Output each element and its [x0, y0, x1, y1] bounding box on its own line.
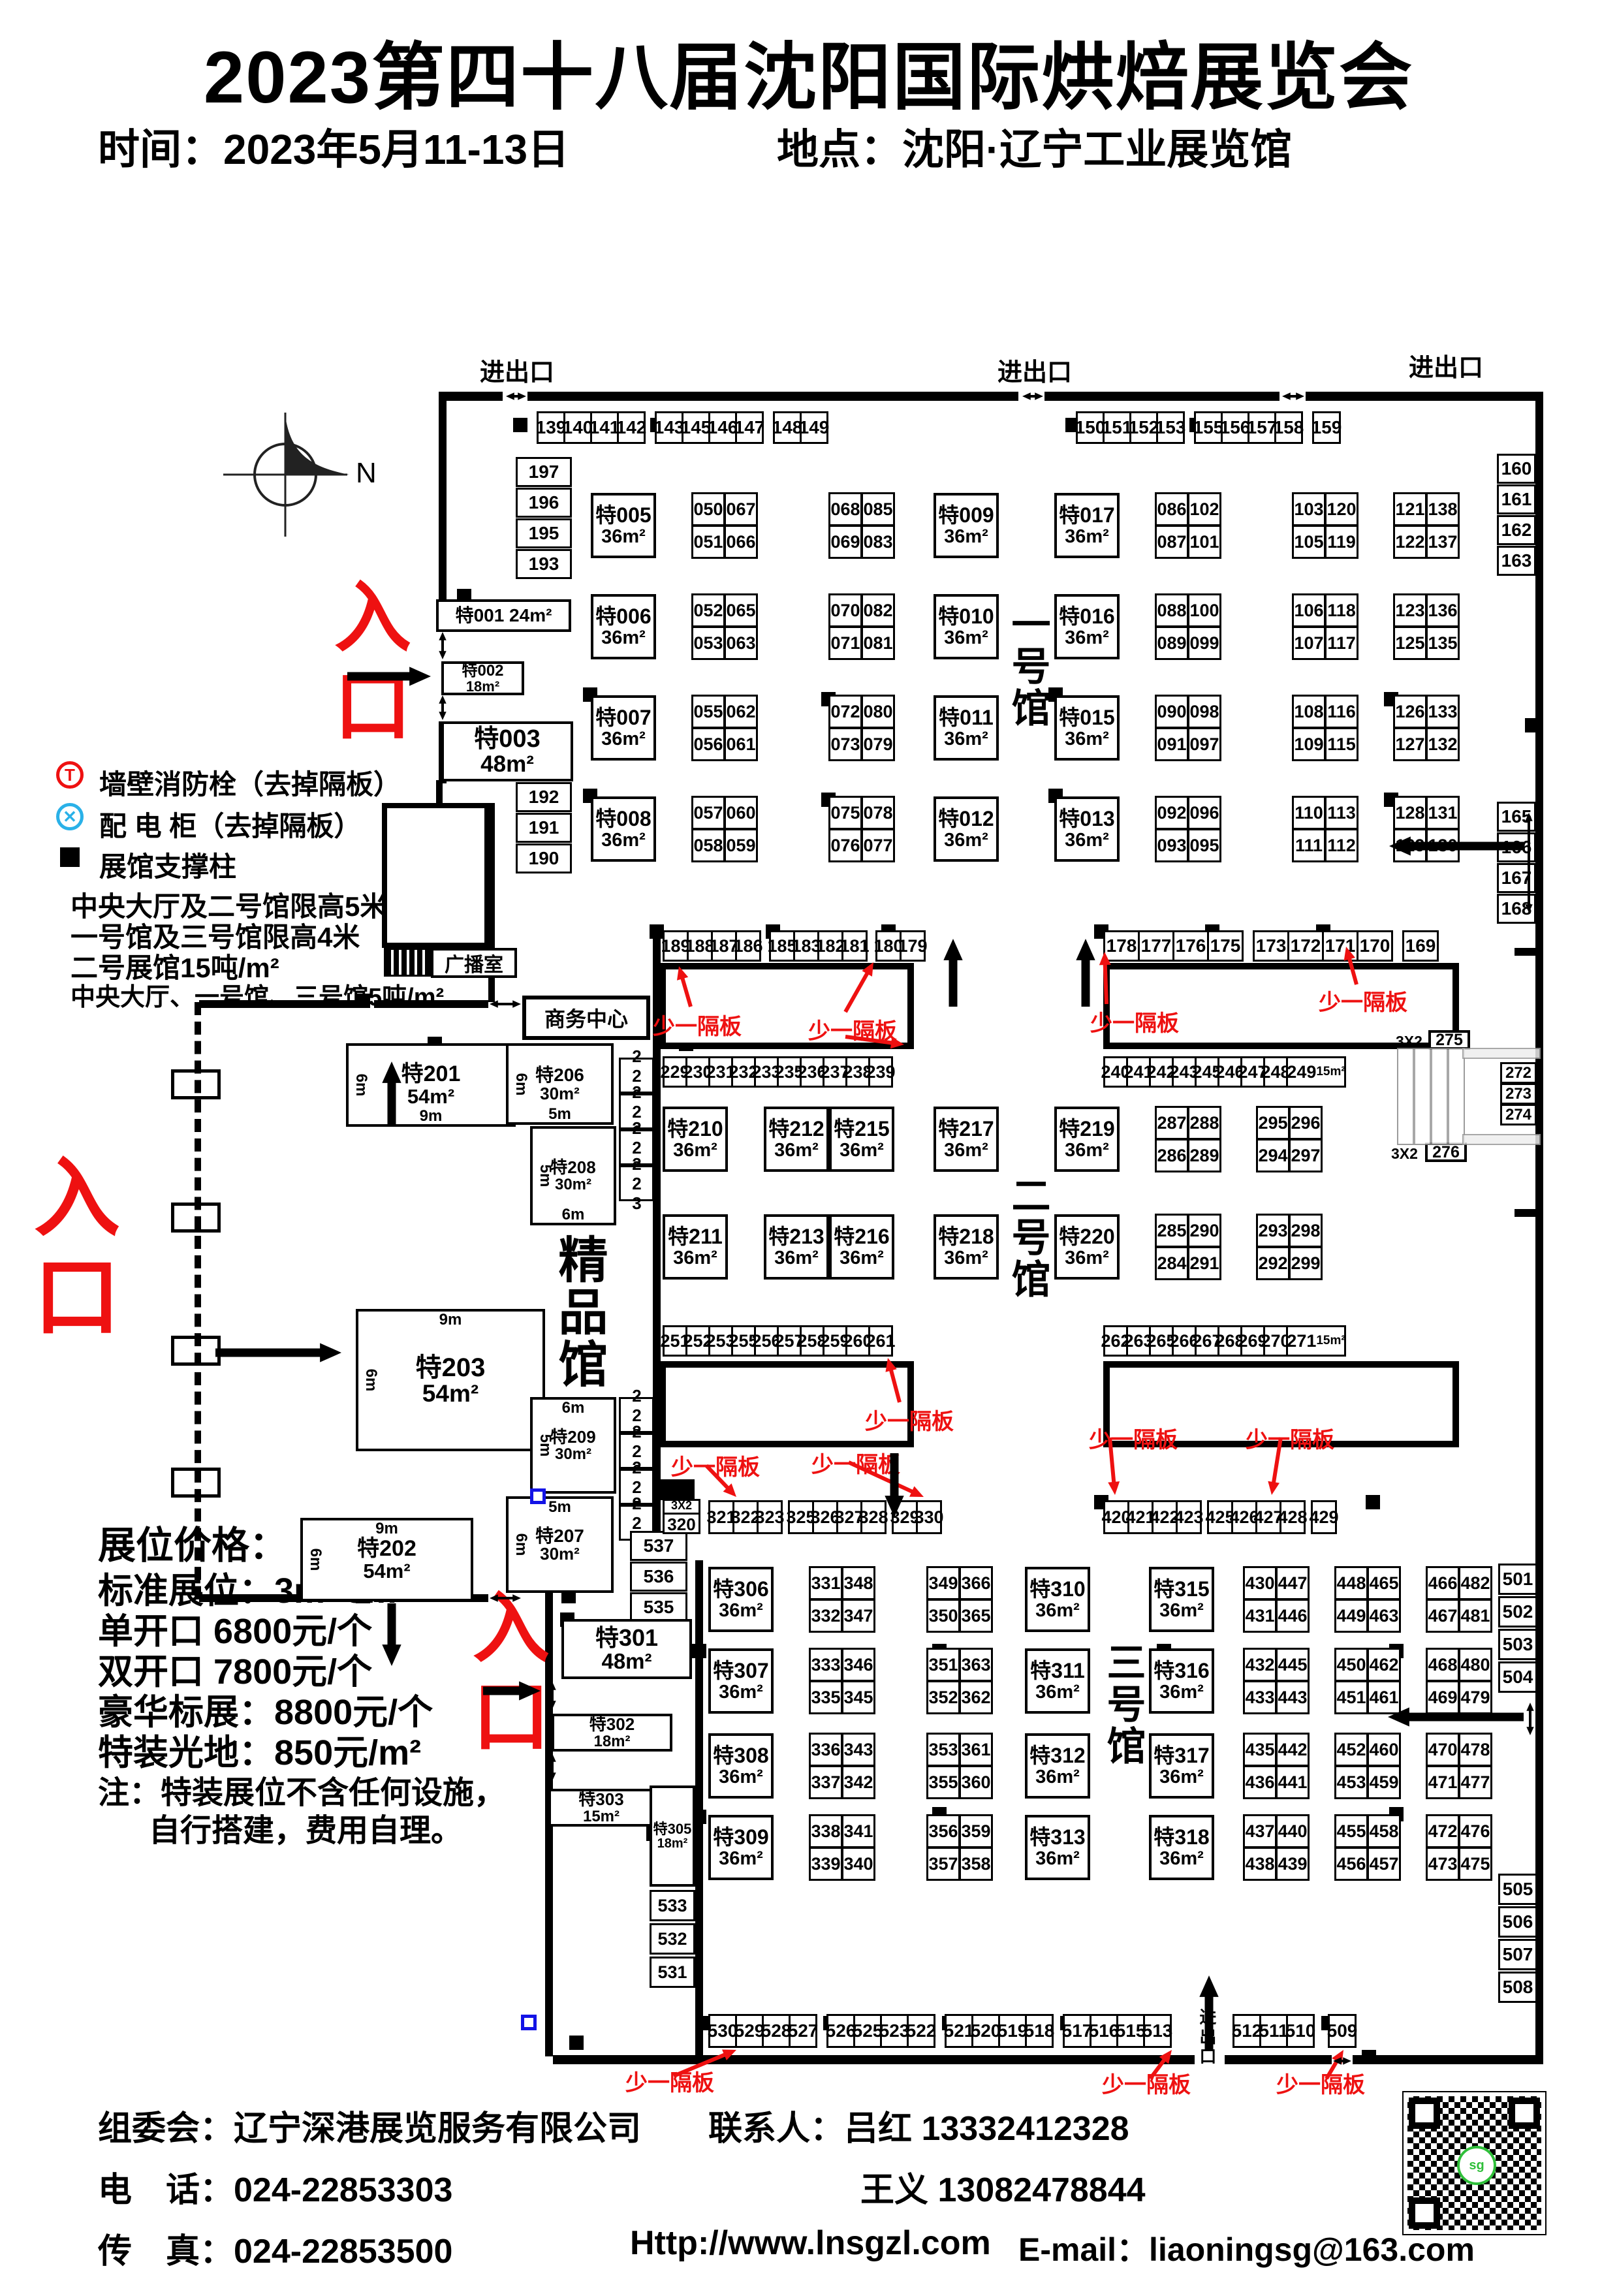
flow-arrow	[1076, 939, 1095, 960]
booth-261: 261	[868, 1325, 893, 1357]
wall	[199, 1000, 356, 1008]
booth-518: 518	[1025, 2014, 1054, 2048]
booth-area: 36m²	[1065, 628, 1109, 648]
booth-特207: 特20730m²6m5m	[506, 1496, 614, 1593]
booth-120: 120	[1325, 492, 1358, 526]
booth-429: 429	[1311, 1500, 1337, 1534]
booth-quad-050: 050067051066	[692, 493, 757, 558]
booth-089: 089	[1155, 626, 1189, 660]
booth-359: 359	[959, 1814, 993, 1848]
booth-249: 249 15m²	[1286, 1056, 1346, 1088]
booth-449: 449	[1334, 1599, 1368, 1633]
booth-109: 109	[1292, 727, 1326, 761]
annotation-少一隔板: 少一隔板	[1319, 984, 1407, 1016]
booth-label: 特218	[938, 1226, 994, 1248]
booth-058: 058	[691, 828, 725, 862]
red-arrow	[1268, 1481, 1279, 1495]
booth-quad-293: 293298292299	[1257, 1214, 1322, 1280]
booth-061: 061	[724, 727, 758, 761]
booth-068: 068	[828, 492, 862, 526]
booth-142: 142	[617, 411, 646, 444]
booth-513: 513	[1143, 2014, 1172, 2048]
booth-159: 159	[1312, 411, 1341, 444]
booth-label: 特219	[1059, 1118, 1114, 1140]
power-box-marker	[521, 2015, 537, 2030]
gap-arrow	[1035, 392, 1043, 400]
booth-特217: 特21736m²	[934, 1107, 999, 1172]
booth-label: 特215	[834, 1118, 889, 1140]
booth-506: 506	[1498, 1906, 1537, 1938]
booth-suffix: 15m²	[1316, 1334, 1345, 1348]
booth-特009: 特00936m²	[934, 493, 999, 558]
booth-270: 270	[1263, 1325, 1288, 1357]
booth-468: 468	[1426, 1648, 1460, 1682]
booth-437: 437	[1243, 1814, 1277, 1848]
booth-143: 143	[655, 411, 683, 444]
booth-432: 432	[1243, 1648, 1277, 1682]
booth-170: 170	[1357, 930, 1393, 962]
booth-459: 459	[1367, 1765, 1401, 1799]
booth-092: 092	[1155, 796, 1189, 830]
booth-069: 069	[828, 525, 862, 559]
entrance-dashed-line	[195, 1002, 201, 1599]
booth-特317: 特31736m²	[1149, 1733, 1214, 1799]
booth-070: 070	[828, 593, 862, 627]
gap-arrow	[439, 695, 446, 704]
booth-117: 117	[1325, 626, 1358, 660]
booth-quad-466: 466482467481	[1426, 1567, 1492, 1632]
booth-451: 451	[1334, 1680, 1368, 1714]
label-入口: 入 口	[473, 1585, 550, 1762]
support-pillar	[356, 994, 370, 1008]
booth-511: 511	[1259, 2014, 1288, 2048]
booth-479: 479	[1458, 1680, 1492, 1714]
booth-475: 475	[1458, 1847, 1492, 1881]
booth-label: 特311	[1030, 1660, 1085, 1682]
booth-label: 特212	[768, 1118, 824, 1140]
wall	[695, 1560, 703, 2056]
booth-特302: 特30218m²	[552, 1714, 672, 1752]
booth-522: 522	[907, 2014, 935, 2048]
booth-quad-356: 356359357358	[927, 1815, 992, 1880]
booth-469: 469	[1426, 1680, 1460, 1714]
booth-126: 126	[1393, 695, 1427, 729]
booth-060: 060	[724, 796, 758, 830]
dim-left: 6m	[513, 1533, 529, 1556]
label-N: N	[356, 457, 377, 490]
booth-088: 088	[1155, 593, 1189, 627]
booth-105: 105	[1292, 525, 1326, 559]
booth-100: 100	[1187, 593, 1221, 627]
booth-337: 337	[809, 1765, 843, 1799]
dim-bottom: 9m	[420, 1108, 443, 1124]
booth-169: 169	[1402, 930, 1439, 962]
booth-123: 123	[1393, 593, 1427, 627]
booth-173: 173	[1253, 930, 1289, 962]
red-arrow	[909, 1486, 924, 1497]
booth-特007: 特00736m²	[591, 695, 656, 761]
booth-131: 131	[1426, 796, 1460, 830]
booth-171: 171	[1322, 930, 1358, 962]
booth-area: 36m²	[944, 527, 988, 546]
booth-455: 455	[1334, 1814, 1368, 1848]
booth-296: 296	[1289, 1106, 1323, 1140]
booth-area: 36m²	[1159, 1849, 1204, 1868]
booth-特008: 特00836m²	[591, 796, 656, 862]
booth-438: 438	[1243, 1847, 1277, 1881]
booth-area: 36m²	[944, 830, 988, 850]
gap-arrow	[439, 632, 446, 640]
booth-quad-349: 349366350365	[927, 1567, 992, 1632]
gap-arrow	[1022, 392, 1031, 400]
room-276: 276	[1425, 1142, 1467, 1162]
support-pillar	[692, 1644, 706, 1658]
booth-特310: 特31036m²	[1025, 1567, 1090, 1632]
booth-area: 18m²	[593, 1733, 630, 1750]
booth-119: 119	[1325, 525, 1358, 559]
booth-515: 515	[1116, 2014, 1145, 2048]
gap-arrow	[1333, 2057, 1342, 2064]
flow-arrow	[320, 1343, 341, 1362]
booth-172: 172	[1287, 930, 1324, 962]
booth-特301: 特30148m²	[561, 1619, 692, 1679]
booth-area: 36m²	[1065, 729, 1109, 749]
booth-447: 447	[1276, 1566, 1310, 1600]
booth-特219: 特21936m²	[1054, 1107, 1120, 1172]
booth-273: 273	[1500, 1083, 1537, 1105]
booth-533: 533	[650, 1890, 695, 1921]
booth-323: 323	[757, 1500, 783, 1534]
gap-arrow	[439, 712, 446, 720]
booth-area: 36m²	[840, 1140, 884, 1160]
booth-195: 195	[516, 518, 572, 548]
booth-label: 特017	[1059, 505, 1114, 527]
booth-quad-331: 331348332347	[809, 1567, 875, 1632]
booth-label: 特006	[595, 606, 651, 628]
booth-293: 293	[1256, 1214, 1290, 1248]
booth-quad-123: 123136125135	[1394, 594, 1459, 659]
booth-特311: 特31136m²	[1025, 1648, 1090, 1714]
booth-label: 特307	[713, 1660, 768, 1682]
booth-area: 36m²	[601, 527, 646, 546]
flow-arrow	[1199, 1975, 1218, 1997]
booth-176: 176	[1172, 930, 1209, 962]
label-进出口: 进出口	[1197, 2008, 1216, 2067]
booth-132: 132	[1426, 727, 1460, 761]
booth-502: 502	[1498, 1596, 1537, 1628]
booth-特201: 特20154m²6m9m	[346, 1043, 516, 1127]
booth-530: 530	[708, 2014, 737, 2048]
booth-area: 18m²	[466, 679, 499, 694]
booth-area: 54m²	[363, 1561, 410, 1582]
booth-area: 36m²	[1159, 1682, 1204, 1702]
gap-arrow	[1526, 1703, 1533, 1711]
booth-label: 特315	[1154, 1579, 1209, 1601]
booth-102: 102	[1187, 492, 1221, 526]
booth-label: 特216	[834, 1226, 889, 1248]
booth-516: 516	[1090, 2014, 1118, 2048]
booth-122: 122	[1393, 525, 1427, 559]
booth-423: 423	[1176, 1500, 1202, 1534]
booth-350: 350	[926, 1599, 960, 1633]
booth-470: 470	[1426, 1733, 1460, 1767]
booth-quad-285: 285290284291	[1155, 1214, 1221, 1280]
booth-特212: 特21236m²	[764, 1107, 829, 1172]
gap-arrow	[506, 392, 514, 400]
booth-label: 特317	[1154, 1745, 1209, 1767]
booth-355: 355	[926, 1765, 960, 1799]
booth-quad-090: 090098091097	[1155, 695, 1221, 761]
booth-342: 342	[841, 1765, 875, 1799]
booth-067: 067	[724, 492, 758, 526]
booth-area: 30m²	[540, 1545, 580, 1563]
booth-quad-287: 287288286289	[1155, 1107, 1221, 1172]
booth-139: 139	[537, 411, 565, 444]
booth-135: 135	[1426, 626, 1460, 660]
booth-365: 365	[959, 1599, 993, 1633]
booth-095: 095	[1187, 828, 1221, 862]
red-arrow	[1108, 1481, 1120, 1495]
booth-065: 065	[724, 593, 758, 627]
booth-341: 341	[841, 1814, 875, 1848]
support-pillar	[1366, 1495, 1380, 1509]
booth-148: 148	[773, 411, 802, 444]
annotation-少一隔板: 少一隔板	[625, 2065, 714, 2097]
booth-number: 320	[667, 1515, 695, 1535]
booth-特218: 特21836m²	[934, 1214, 999, 1280]
booth-area: 15m²	[583, 1808, 620, 1825]
booth-292: 292	[1256, 1246, 1290, 1280]
booth-quad-068: 068085069083	[829, 493, 894, 558]
room-275: 275	[1428, 1030, 1470, 1050]
booth-525: 525	[853, 2014, 882, 2048]
booth-166: 166	[1497, 832, 1536, 862]
booth-075: 075	[828, 796, 862, 830]
booth-457: 457	[1367, 1847, 1401, 1881]
booth-特001: 特001 24m²	[436, 599, 571, 632]
booth-331: 331	[809, 1566, 843, 1600]
booth-156: 156	[1221, 411, 1249, 444]
booth-073: 073	[828, 727, 862, 761]
booth-quad-472: 472476473475	[1426, 1815, 1492, 1880]
booth-052: 052	[691, 593, 725, 627]
escalator	[1397, 1048, 1465, 1145]
booth-label: 特206	[535, 1065, 584, 1084]
label-三号馆: 三号馆	[1101, 1642, 1146, 1767]
booth-label: 特015	[1059, 707, 1114, 729]
booth-480: 480	[1458, 1648, 1492, 1682]
booth-label: 特013	[1059, 808, 1114, 830]
wall	[439, 392, 447, 601]
dim-left: 6m	[353, 1074, 369, 1097]
booth-080: 080	[861, 695, 895, 729]
gap-arrow	[518, 392, 526, 400]
booth-328: 328	[860, 1500, 887, 1534]
booth-146: 146	[708, 411, 737, 444]
booth-特011: 特01136m²	[934, 695, 999, 761]
wall	[553, 2055, 1195, 2064]
booth-label: 特002	[462, 663, 503, 679]
booth-179: 179	[900, 930, 926, 962]
booth-area: 36m²	[840, 1248, 884, 1268]
booth-297: 297	[1289, 1139, 1323, 1172]
booth-quad-448: 448465449463	[1335, 1567, 1400, 1632]
dim-left: 6m	[363, 1369, 379, 1392]
booth-area: 36m²	[601, 628, 646, 648]
compass-icon	[255, 444, 316, 505]
booth-509: 509	[1328, 2014, 1357, 2048]
booth-quad-086: 086102087101	[1155, 493, 1221, 558]
label-进出口: 进出口	[480, 359, 554, 388]
booth-343: 343	[841, 1733, 875, 1767]
wall	[439, 392, 503, 401]
booth-特305: 特30518m²	[650, 1785, 695, 1887]
booth-456: 456	[1334, 1847, 1368, 1881]
booth-160: 160	[1497, 454, 1536, 484]
booth-059: 059	[724, 828, 758, 862]
booth-quad-437: 437440438439	[1244, 1815, 1309, 1880]
booth-298: 298	[1289, 1214, 1323, 1248]
booth-110: 110	[1292, 796, 1326, 830]
booth-127: 127	[1393, 727, 1427, 761]
booth-quad-450: 450462451461	[1335, 1648, 1400, 1714]
booth-271: 271 15m²	[1286, 1325, 1346, 1357]
booth-147: 147	[735, 411, 764, 444]
booth-116: 116	[1325, 695, 1358, 729]
booth-label: 特010	[938, 606, 994, 628]
booth-area: 30m²	[555, 1446, 591, 1462]
booth-087: 087	[1155, 525, 1189, 559]
booth-101: 101	[1187, 525, 1221, 559]
booth-157: 157	[1248, 411, 1276, 444]
booth-label: 特313	[1029, 1827, 1085, 1849]
dim-bottom: 6m	[562, 1206, 585, 1223]
booth-536: 536	[630, 1562, 687, 1592]
booth-area: 36m²	[1035, 1682, 1080, 1702]
gap-arrow	[439, 651, 446, 659]
booth-area: 36m²	[673, 1140, 717, 1160]
booth-label: 特012	[938, 808, 994, 830]
label-精品馆: 精品馆	[550, 1234, 606, 1391]
wall	[1515, 948, 1543, 956]
booth-label: 特316	[1154, 1660, 1209, 1682]
booth-quad-295: 295296294297	[1257, 1107, 1322, 1172]
dim-top: 6m	[562, 1400, 585, 1416]
booth-area: 36m²	[719, 1849, 763, 1868]
booth-118: 118	[1325, 593, 1358, 627]
annotation-少一隔板: 少一隔板	[865, 1404, 954, 1436]
booth-510: 510	[1286, 2014, 1315, 2048]
booth-特006: 特00636m²	[591, 594, 656, 659]
booth-特215: 特21536m²	[829, 1107, 894, 1172]
booth-345: 345	[841, 1680, 875, 1714]
booth-label: 特202	[357, 1537, 416, 1561]
floor-plan-poster: 2023第四十八届沈阳国际烘焙展览会 时间：2023年5月11-13日 地点：沈…	[0, 0, 1617, 2296]
booth-quad-336: 336343337342	[809, 1733, 875, 1799]
room-商务中心: 商务中心	[522, 996, 650, 1040]
wall	[1353, 2055, 1543, 2064]
booth-471: 471	[1426, 1765, 1460, 1799]
booth-area: 48m²	[601, 1650, 652, 1673]
booth-特210: 特21036m²	[663, 1107, 728, 1172]
booth-label: 特301	[595, 1626, 658, 1650]
booth-448: 448	[1334, 1566, 1368, 1600]
booth-158: 158	[1274, 411, 1303, 444]
booth-特002: 特00218m²	[441, 661, 524, 695]
booth-093: 093	[1155, 828, 1189, 862]
booth-443: 443	[1276, 1680, 1310, 1714]
booth-label: 特005	[595, 505, 651, 527]
booth-162: 162	[1497, 515, 1536, 545]
booth-295: 295	[1256, 1106, 1290, 1140]
compass-north-pointer	[285, 416, 349, 475]
booth-quad-088: 088100089099	[1155, 594, 1221, 659]
label-进出口: 进出口	[997, 359, 1072, 388]
red-arrow	[1332, 2050, 1343, 2064]
escalator-landing	[1462, 1134, 1541, 1145]
booth-area: 36m²	[1159, 1601, 1204, 1620]
booth-quad-121: 121138122137	[1394, 493, 1459, 558]
booth-504: 504	[1498, 1661, 1537, 1693]
booth-501: 501	[1498, 1564, 1537, 1595]
booth-357: 357	[926, 1847, 960, 1881]
booth-072: 072	[828, 695, 862, 729]
booth-529: 529	[735, 2014, 764, 2048]
booth-431: 431	[1243, 1599, 1277, 1633]
booth-175: 175	[1207, 930, 1244, 962]
booth-label: 特305	[653, 1821, 692, 1836]
booth-351: 351	[926, 1648, 960, 1682]
booth-473: 473	[1426, 1847, 1460, 1881]
booth-181: 181	[841, 930, 868, 962]
annotation-少一隔板: 少一隔板	[1089, 1422, 1178, 1454]
booth-077: 077	[861, 828, 895, 862]
booth-138: 138	[1426, 492, 1460, 526]
booth-527: 527	[789, 2014, 817, 2048]
booth-label: 特213	[768, 1226, 824, 1248]
booth-label: 特207	[535, 1526, 584, 1545]
annotation-少一隔板: 少一隔板	[1102, 2067, 1191, 2099]
booth-115: 115	[1325, 727, 1358, 761]
booth-特017: 特01736m²	[1054, 493, 1120, 558]
booth-433: 433	[1243, 1680, 1277, 1714]
booth-528: 528	[762, 2014, 791, 2048]
booth-quad-351: 351363352362	[927, 1648, 992, 1714]
booth-223: 223	[619, 1165, 654, 1201]
booth-area: 36m²	[1159, 1767, 1204, 1787]
support-pillar	[1362, 2050, 1376, 2064]
booth-特303: 特30315m²	[548, 1789, 654, 1827]
booth-149: 149	[800, 411, 828, 444]
booth-area: 54m²	[422, 1381, 479, 1407]
booth-quad-052: 052065053063	[692, 594, 757, 659]
booth-289: 289	[1187, 1139, 1221, 1172]
flow-arrow	[382, 1644, 401, 1666]
booth-特220: 特22036m²	[1054, 1214, 1120, 1280]
booth-099: 099	[1187, 626, 1221, 660]
booth-453: 453	[1334, 1765, 1368, 1799]
booth-272: 272	[1500, 1062, 1537, 1084]
booth-097: 097	[1187, 727, 1221, 761]
booth-label: 特309	[713, 1827, 768, 1849]
booth-121: 121	[1393, 492, 1427, 526]
booth-label: 特003	[474, 727, 540, 753]
dim-left: 5m	[537, 1434, 554, 1457]
booth-label: 特318	[1154, 1827, 1209, 1849]
booth-111: 111	[1292, 828, 1326, 862]
red-arrow	[723, 1483, 736, 1497]
booth-特318: 特31836m²	[1149, 1815, 1214, 1880]
